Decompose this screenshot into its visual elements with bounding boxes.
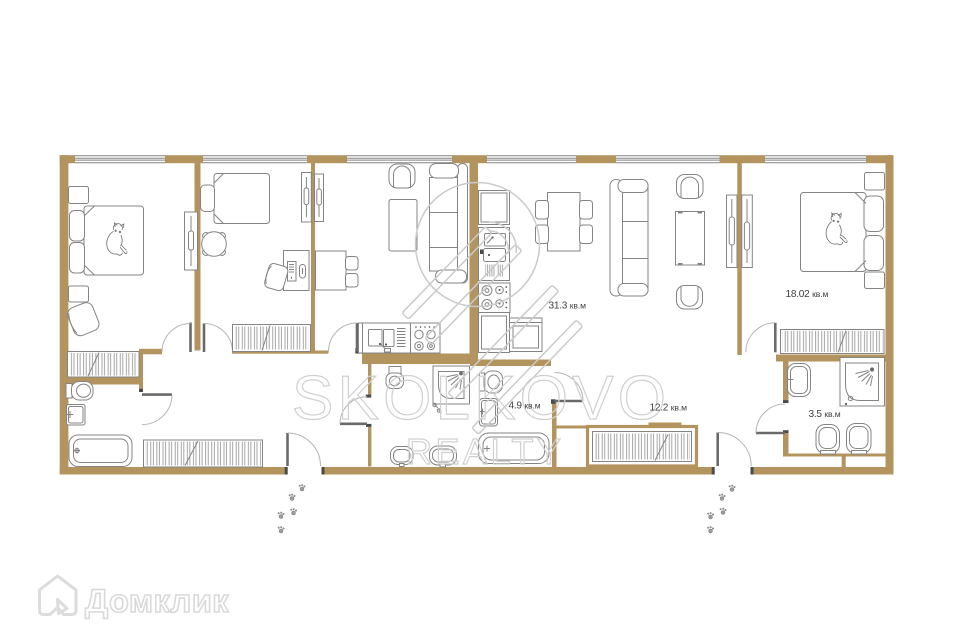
svg-text:REALTY: REALTY: [406, 431, 564, 472]
svg-text:Домклик: Домклик: [85, 583, 229, 619]
svg-text:18.02 кв.м: 18.02 кв.м: [786, 289, 829, 300]
svg-text:3.5 кв.м: 3.5 кв.м: [809, 409, 841, 420]
svg-text:SKOLKOVO: SKOLKOVO: [292, 364, 670, 433]
svg-text:12.2 кв.м: 12.2 кв.м: [650, 403, 688, 414]
svg-text:4.9 кв.м: 4.9 кв.м: [509, 401, 541, 412]
svg-text:31.3 кв.м: 31.3 кв.м: [549, 301, 587, 312]
